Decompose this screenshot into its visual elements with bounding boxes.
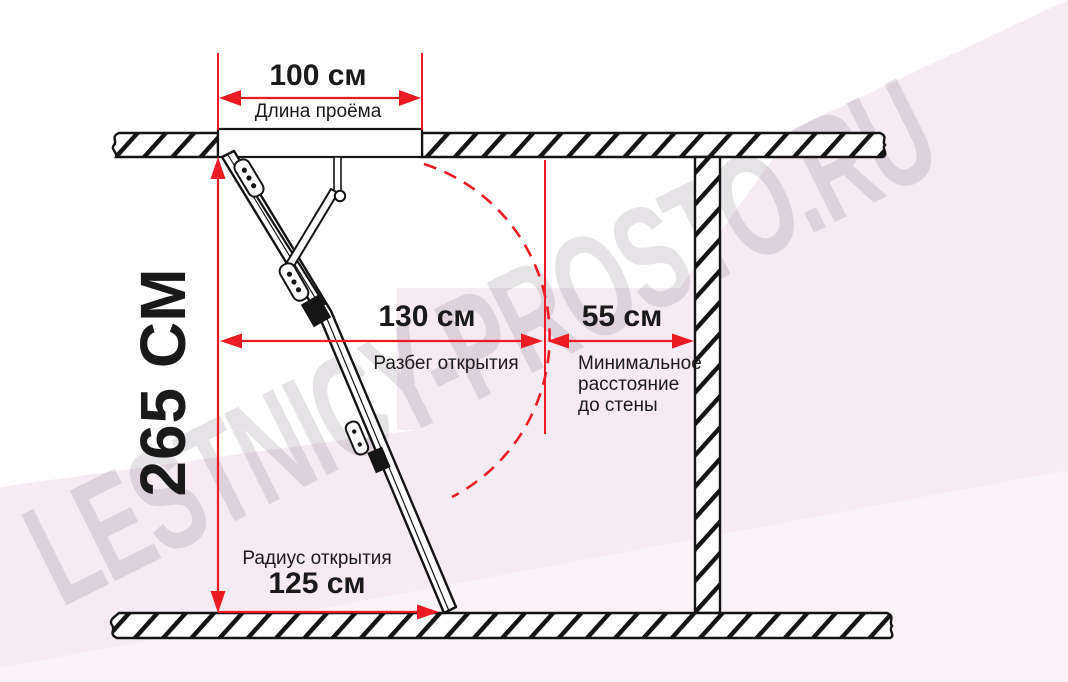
- wall-clearance-label: Минимальное расстояние до стены: [578, 353, 700, 416]
- arrow-right-icon: [672, 334, 694, 349]
- arrow-down-icon: [211, 591, 226, 613]
- ceiling-left-slab: [113, 133, 218, 157]
- opening-length-label: Длина проёма: [238, 101, 398, 122]
- attic-ladder-dimension-diagram: LESTNICY-PROSTO.RU: [0, 0, 1068, 682]
- ceiling-hanger-link: [334, 157, 341, 195]
- arrow-right-icon: [521, 334, 543, 349]
- floor: [111, 613, 892, 638]
- ceiling-height-value: 265 СМ: [126, 267, 200, 496]
- arrow-left-icon: [220, 334, 242, 349]
- strut-pivot: [335, 191, 345, 201]
- hatch-opening-box: [218, 129, 422, 157]
- ceiling-right-slab: [422, 133, 885, 157]
- opening-run-value: 130 см: [357, 301, 497, 333]
- opening-run-label: Разбег открытия: [346, 353, 546, 374]
- folding-ladder: [222, 151, 456, 613]
- opening-length-value: 100 см: [238, 60, 398, 92]
- wall-clearance-value: 55 см: [552, 301, 692, 333]
- arrow-right-icon: [399, 90, 421, 106]
- opening-radius-value: 125 см: [237, 568, 397, 600]
- opening-radius-label: Радиус открытия: [227, 548, 407, 569]
